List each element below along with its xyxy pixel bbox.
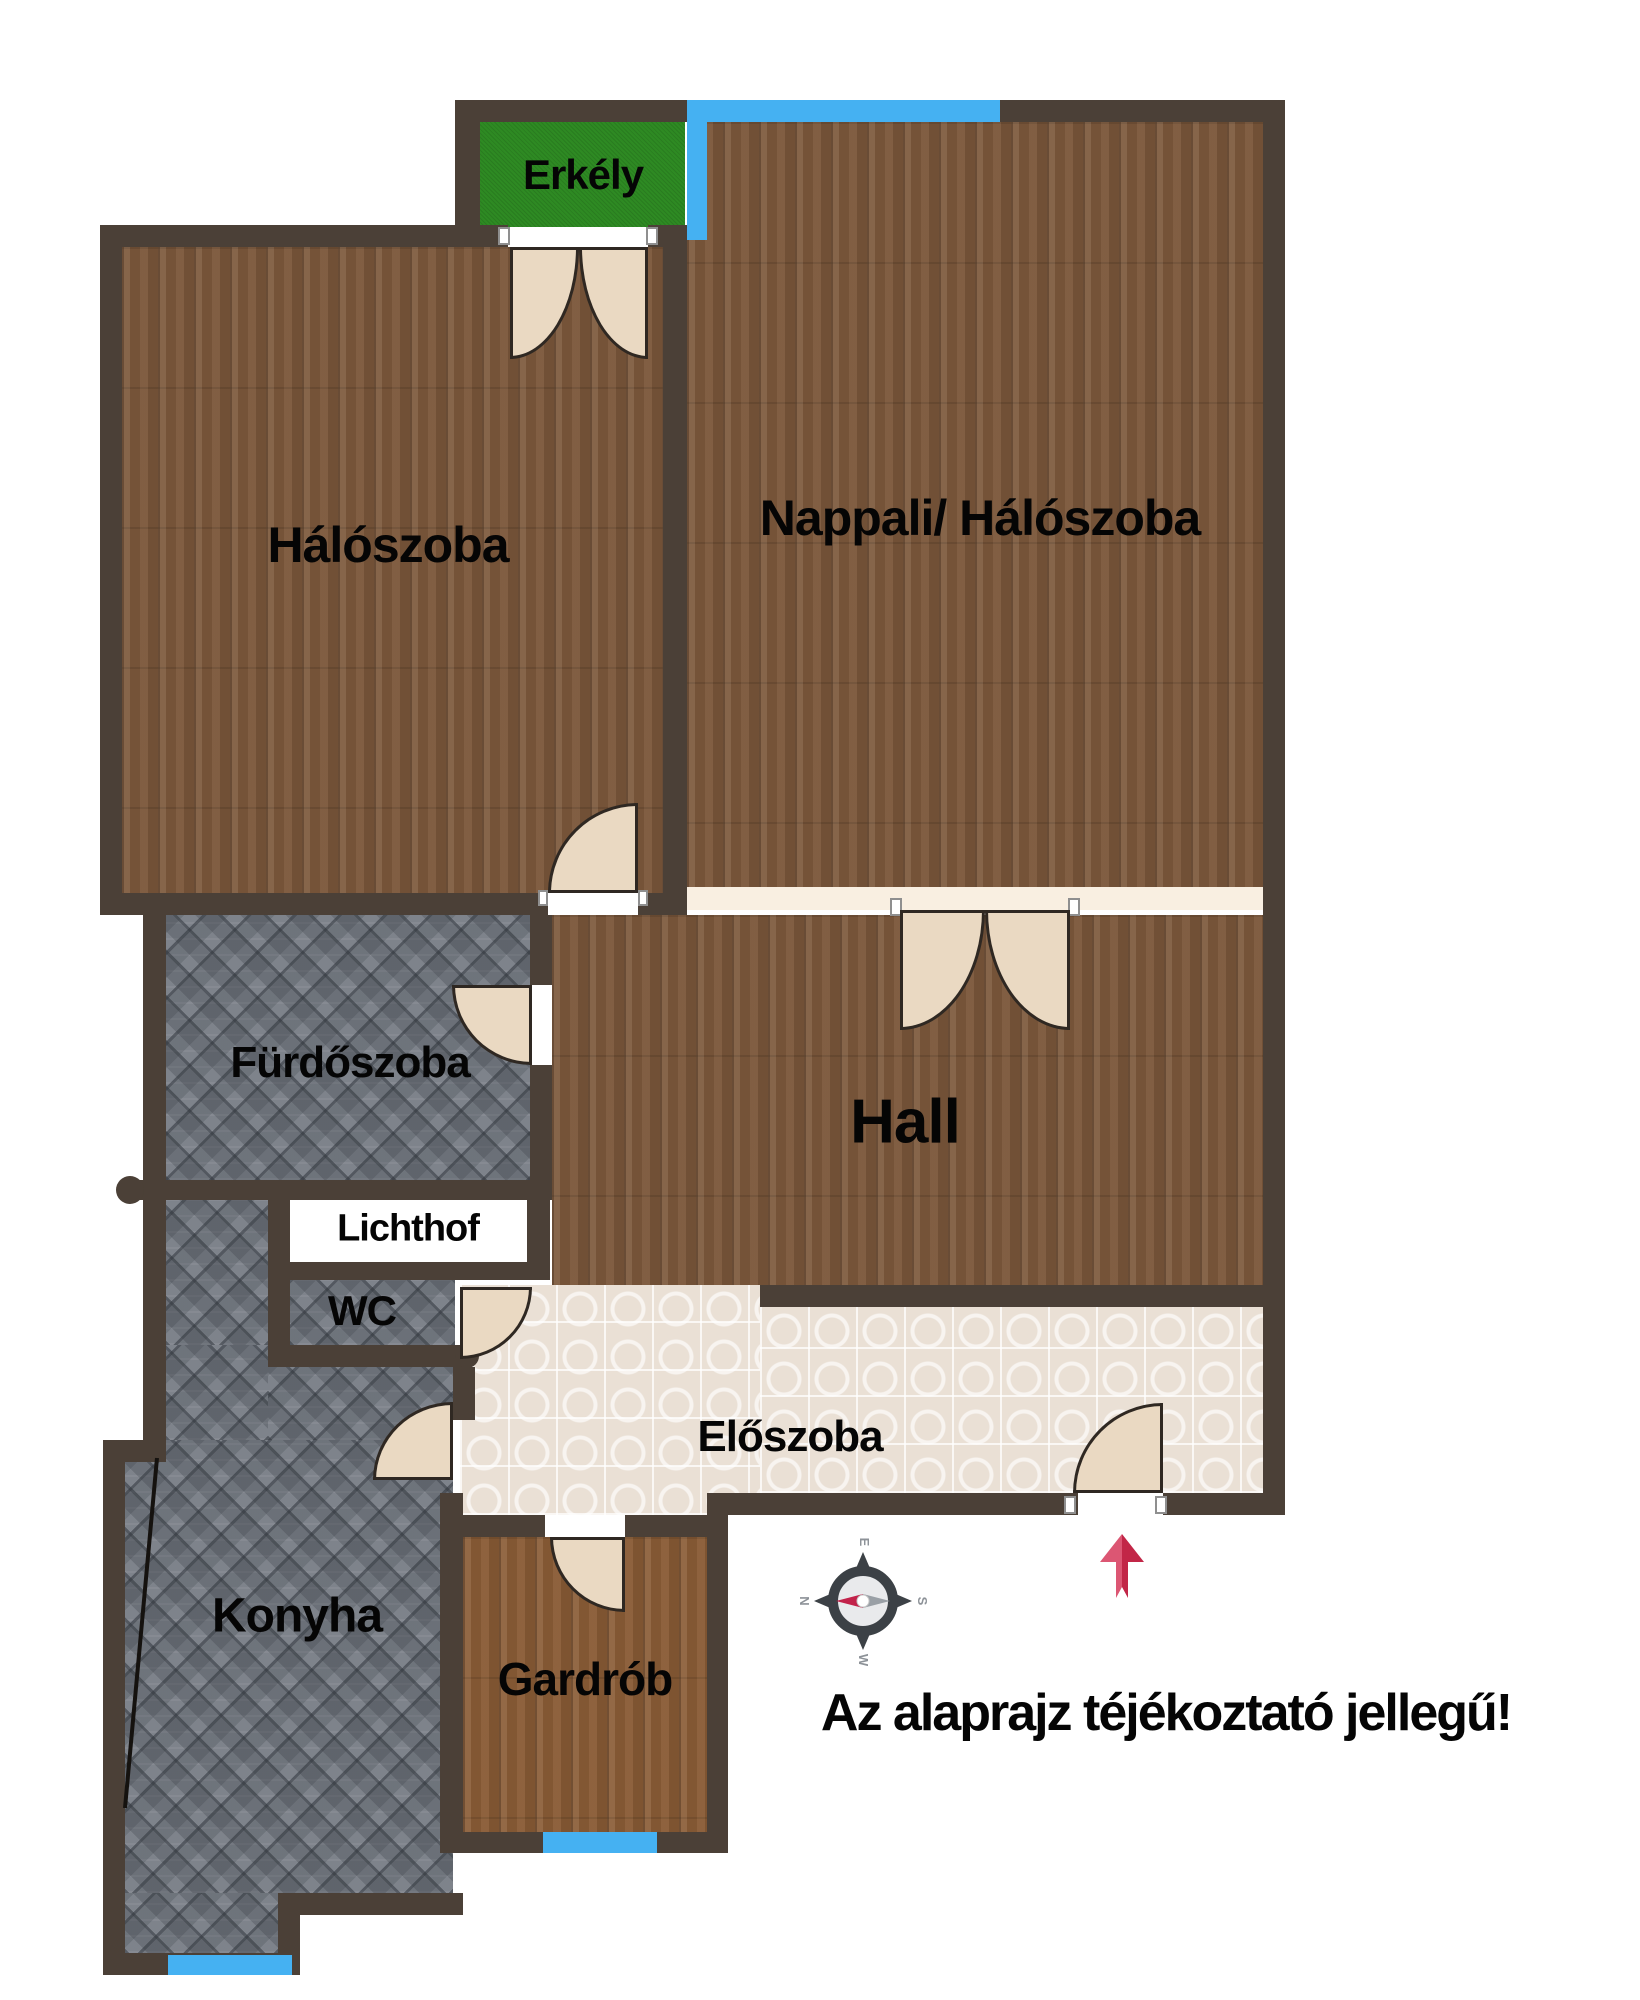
floor-plan: E S W N Erkély Hálószoba Nappali/ Hálósz… — [0, 0, 1640, 2000]
wall — [290, 1262, 527, 1280]
wall — [1263, 100, 1285, 1515]
wall — [278, 1893, 463, 1915]
door-frame — [1155, 1496, 1167, 1514]
wall — [527, 1200, 550, 1280]
wall — [455, 100, 687, 122]
wall — [707, 1493, 728, 1853]
door-frame — [538, 890, 548, 906]
konyha-slanted-wall — [100, 1440, 180, 1820]
room-konyha-label: Konyha — [212, 1589, 382, 1644]
compass-north-label: N — [798, 1596, 812, 1605]
room-eloszoba-floor — [760, 1307, 1263, 1493]
wall — [100, 893, 548, 915]
wall — [100, 225, 480, 247]
room-haloszoba-label: Hálószoba — [267, 516, 508, 574]
window-nappali-side — [687, 103, 707, 240]
wall — [268, 1345, 468, 1367]
corridor-floor — [166, 1345, 268, 1440]
wall — [143, 915, 166, 1200]
room-hall-label: Hall — [850, 1087, 960, 1158]
door-frame — [638, 890, 648, 906]
compass-icon: E S W N — [798, 1536, 928, 1666]
wall — [728, 1493, 1078, 1515]
wall — [530, 915, 552, 985]
corridor-floor — [166, 1200, 268, 1345]
wall — [463, 1515, 545, 1537]
disclaimer-text: Az alaprajz téjékoztató jellegű! — [821, 1683, 1511, 1743]
wall — [625, 1515, 707, 1537]
wall — [440, 1493, 463, 1853]
wall — [130, 1180, 550, 1200]
wall — [1163, 1493, 1285, 1515]
nappali-hall-opening — [687, 887, 1263, 910]
wall — [268, 1200, 290, 1345]
wall-endcap — [116, 1176, 144, 1204]
door-frame — [646, 227, 658, 245]
room-konyha-floor — [125, 1893, 278, 1953]
lichthof-label: Lichthof — [337, 1208, 479, 1251]
wall — [143, 1200, 166, 1440]
window-nappali-top — [687, 100, 1000, 122]
wall — [663, 247, 687, 893]
room-furdoszoba-label: Fürdőszoba — [230, 1038, 469, 1088]
door-frame — [498, 227, 510, 245]
wall — [453, 1367, 475, 1420]
entrance-arrow-icon — [1098, 1534, 1146, 1604]
window-konyha — [168, 1955, 292, 1975]
door-frame — [1064, 1496, 1076, 1514]
room-eloszoba-label: Előszoba — [697, 1412, 882, 1462]
wall — [760, 1285, 1263, 1307]
compass-south-label: S — [915, 1597, 928, 1606]
room-wc-label: WC — [328, 1287, 396, 1335]
compass-east-label: E — [857, 1538, 872, 1547]
window-gardrob — [543, 1832, 657, 1853]
room-gardrob-label: Gardrób — [498, 1652, 672, 1706]
compass-west-label: W — [856, 1654, 871, 1666]
room-nappali-label: Nappali/ Hálószoba — [760, 489, 1200, 547]
wall — [100, 225, 122, 915]
room-erkely-label: Erkély — [523, 151, 643, 199]
